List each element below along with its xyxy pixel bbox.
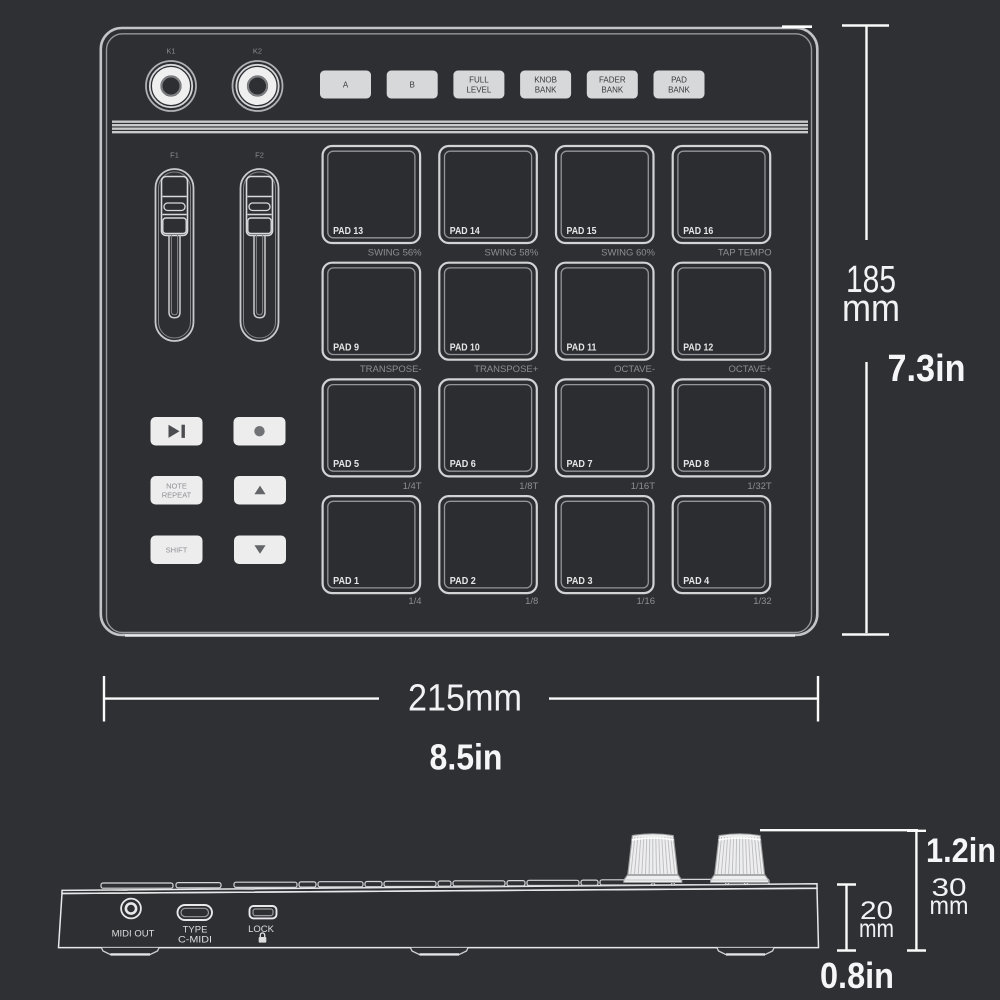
svg-text:215mm: 215mm (408, 678, 522, 720)
svg-text:NOTE: NOTE (166, 482, 187, 491)
svg-text:PAD 12: PAD 12 (683, 343, 713, 354)
svg-text:K2: K2 (253, 47, 262, 56)
svg-text:PAD 1: PAD 1 (333, 576, 359, 587)
svg-text:1/4T: 1/4T (403, 481, 422, 492)
svg-text:PAD 8: PAD 8 (683, 459, 709, 470)
svg-text:PAD 15: PAD 15 (567, 226, 597, 237)
svg-text:mm: mm (930, 892, 969, 920)
svg-text:1/16: 1/16 (637, 596, 656, 607)
svg-text:B: B (410, 81, 415, 90)
svg-text:1/16T: 1/16T (631, 481, 655, 492)
svg-text:F2: F2 (255, 151, 264, 160)
svg-text:F1: F1 (170, 151, 179, 160)
svg-text:BANK: BANK (601, 86, 623, 95)
svg-text:7.3in: 7.3in (888, 348, 966, 390)
svg-text:SWING 56%: SWING 56% (368, 247, 422, 258)
svg-text:1.2in: 1.2in (926, 832, 996, 870)
svg-text:mm: mm (859, 915, 894, 943)
svg-text:1/4: 1/4 (408, 596, 421, 607)
svg-text:PAD: PAD (671, 76, 687, 85)
svg-text:1/8T: 1/8T (519, 481, 538, 492)
svg-text:PAD 3: PAD 3 (567, 576, 593, 587)
svg-text:TRANSPOSE+: TRANSPOSE+ (474, 364, 539, 375)
svg-text:SWING 60%: SWING 60% (601, 247, 655, 258)
svg-text:FADER: FADER (599, 76, 626, 85)
svg-text:PAD 11: PAD 11 (567, 343, 597, 354)
svg-text:PAD 4: PAD 4 (683, 576, 709, 587)
svg-text:PAD 9: PAD 9 (333, 343, 359, 354)
svg-text:MIDI OUT: MIDI OUT (112, 929, 155, 940)
svg-text:BANK: BANK (668, 86, 690, 95)
svg-text:PAD 10: PAD 10 (450, 343, 480, 354)
svg-text:REPEAT: REPEAT (162, 491, 192, 500)
svg-text:mm: mm (842, 288, 900, 330)
svg-text:SHIFT: SHIFT (166, 546, 188, 555)
svg-text:PAD 2: PAD 2 (450, 576, 476, 587)
svg-text:A: A (343, 81, 349, 90)
svg-text:1/32T: 1/32T (747, 481, 771, 492)
svg-text:TAP TEMPO: TAP TEMPO (718, 247, 772, 258)
svg-text:1/8: 1/8 (525, 596, 538, 607)
svg-text:PAD 16: PAD 16 (683, 226, 713, 237)
svg-text:PAD 14: PAD 14 (450, 226, 480, 237)
svg-text:PAD 13: PAD 13 (333, 226, 363, 237)
svg-text:BANK: BANK (535, 86, 557, 95)
svg-text:TRANSPOSE-: TRANSPOSE- (360, 364, 422, 375)
svg-text:PAD 6: PAD 6 (450, 459, 476, 470)
svg-text:KNOB: KNOB (534, 76, 557, 85)
svg-text:OCTAVE-: OCTAVE- (614, 364, 655, 375)
svg-text:K1: K1 (166, 47, 175, 56)
svg-text:LEVEL: LEVEL (466, 86, 491, 95)
svg-text:C-MIDI: C-MIDI (178, 935, 212, 946)
svg-text:PAD 7: PAD 7 (567, 459, 593, 470)
svg-text:PAD 5: PAD 5 (333, 459, 359, 470)
svg-text:SWING 58%: SWING 58% (484, 247, 538, 258)
svg-text:1/32: 1/32 (753, 596, 772, 607)
svg-text:OCTAVE+: OCTAVE+ (728, 364, 772, 375)
svg-text:8.5in: 8.5in (430, 737, 503, 778)
svg-text:0.8in: 0.8in (820, 955, 894, 996)
svg-text:FULL: FULL (469, 76, 489, 85)
